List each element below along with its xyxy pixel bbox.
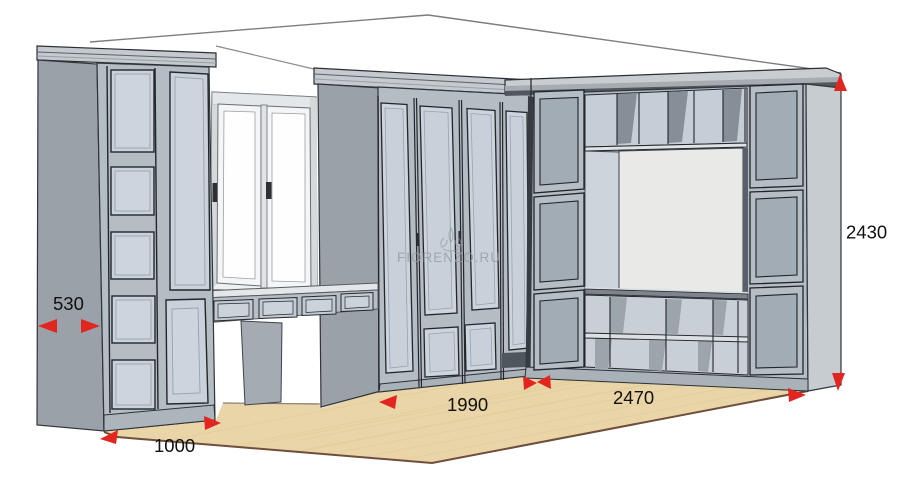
svg-text:FIORENZO.RU: FIORENZO.RU <box>397 250 501 265</box>
svg-text:1000: 1000 <box>154 435 195 456</box>
svg-text:530: 530 <box>53 293 84 314</box>
svg-text:2430: 2430 <box>846 222 887 243</box>
svg-text:2470: 2470 <box>613 387 654 408</box>
svg-text:1990: 1990 <box>447 394 488 415</box>
